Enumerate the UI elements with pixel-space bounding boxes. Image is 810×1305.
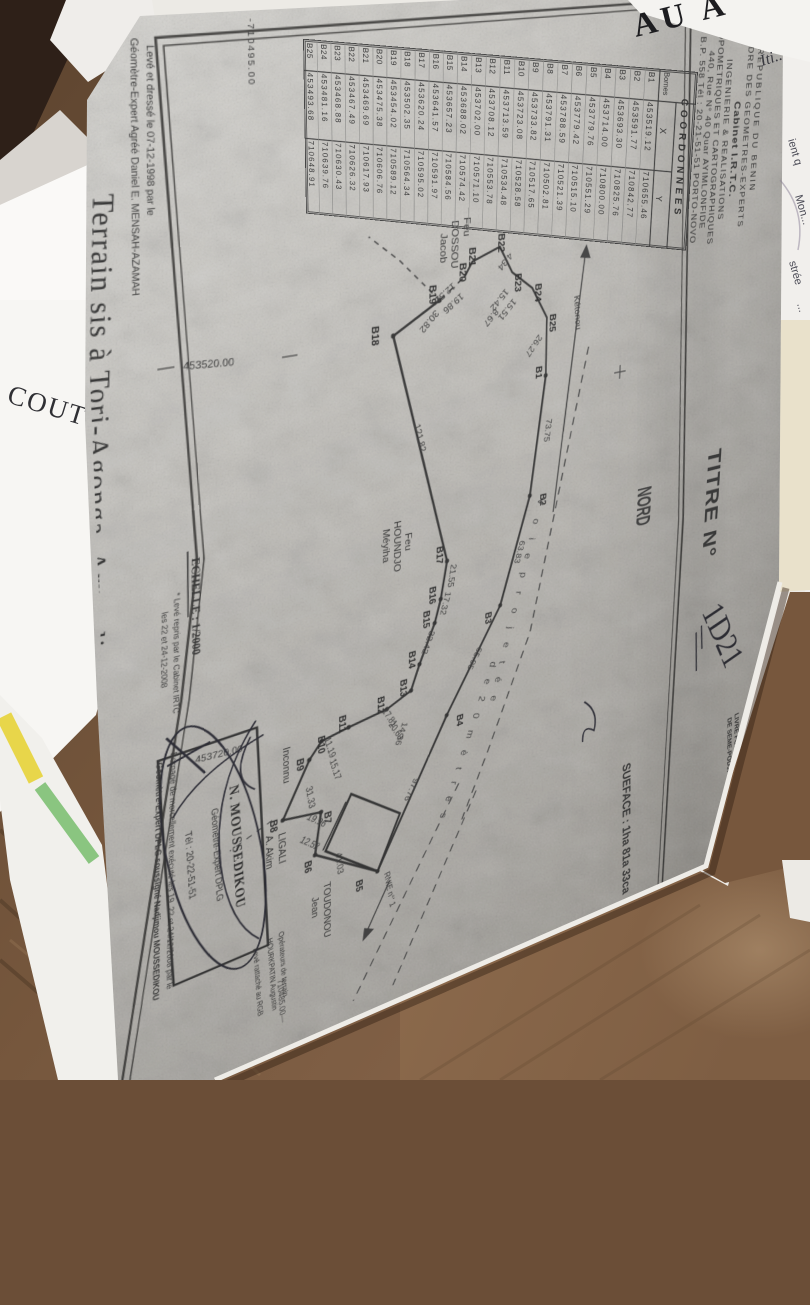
svg-text:453454.02: 453454.02 bbox=[389, 79, 398, 129]
svg-text:B20: B20 bbox=[375, 48, 384, 65]
svg-text:ECHELLE : 1/2000: ECHELLE : 1/2000 bbox=[188, 556, 202, 657]
svg-text:B13: B13 bbox=[474, 57, 483, 74]
svg-text:710825.76: 710825.76 bbox=[611, 168, 622, 217]
svg-text:B5: B5 bbox=[353, 878, 363, 894]
svg-text:B12: B12 bbox=[488, 58, 497, 75]
svg-text:710534.48: 710534.48 bbox=[499, 158, 509, 207]
svg-text:B21: B21 bbox=[361, 47, 370, 64]
svg-text:B5: B5 bbox=[588, 67, 597, 79]
svg-text:B24: B24 bbox=[319, 44, 328, 61]
svg-text:B15: B15 bbox=[421, 610, 431, 631]
svg-text:710630.43: 710630.43 bbox=[334, 143, 343, 191]
svg-text:453688.02: 453688.02 bbox=[458, 86, 467, 136]
svg-text:B25: B25 bbox=[305, 43, 314, 60]
svg-text:Tél : 20-22-51-51: Tél : 20-22-51-51 bbox=[183, 830, 198, 901]
svg-text:Géomètre-Expert DPLG soussigné: Géomètre-Expert DPLG soussigné Nadjimou … bbox=[151, 761, 165, 1002]
svg-text:B4: B4 bbox=[603, 68, 612, 80]
svg-text:les 22 et 24-12-2008: les 22 et 24-12-2008 bbox=[159, 611, 170, 689]
svg-text:B17: B17 bbox=[417, 52, 426, 69]
svg-text:Bornage de morcellement exécut: Bornage de morcellement exécuté les 19, … bbox=[164, 751, 178, 991]
svg-text:Méyiha: Méyiha bbox=[380, 528, 391, 564]
svg-text:B6: B6 bbox=[302, 859, 313, 875]
svg-text:1D21: 1D21 bbox=[696, 593, 749, 677]
svg-text:B25: B25 bbox=[547, 313, 557, 333]
svg-text:NORD: NORD bbox=[632, 484, 657, 529]
svg-text:710553.78: 710553.78 bbox=[485, 157, 495, 206]
svg-text:710502.81: 710502.81 bbox=[540, 162, 550, 211]
svg-text:710589.12: 710589.12 bbox=[389, 148, 397, 196]
svg-text:B8: B8 bbox=[267, 818, 278, 834]
svg-text:Levé rattaché au RGB: Levé rattaché au RGB bbox=[251, 946, 265, 1018]
svg-text:710591.97: 710591.97 bbox=[430, 152, 439, 201]
svg-text:B6: B6 bbox=[574, 65, 583, 77]
svg-text:453591.77: 453591.77 bbox=[628, 101, 640, 152]
svg-text:TOUDONOU: TOUDONOU bbox=[321, 881, 331, 940]
svg-text:Bornes: Bornes bbox=[661, 72, 671, 96]
svg-text:B23: B23 bbox=[512, 273, 522, 293]
svg-text:B15: B15 bbox=[445, 54, 454, 71]
svg-text:65.95: 65.95 bbox=[465, 646, 484, 671]
svg-text:710595.02: 710595.02 bbox=[416, 150, 425, 198]
svg-text:* Levé repris par le Cabinet I: * Levé repris par le Cabinet IRTC bbox=[171, 592, 182, 716]
svg-text:710639.76: 710639.76 bbox=[320, 141, 329, 189]
svg-text:Géomètre-Expert Agréé Daniel E: Géomètre-Expert Agréé Daniel E. MENSAH-A… bbox=[128, 38, 142, 296]
svg-text:710655.46: 710655.46 bbox=[639, 171, 650, 220]
svg-text:B1: B1 bbox=[533, 365, 543, 380]
svg-text:453641.57: 453641.57 bbox=[430, 83, 439, 133]
svg-text:710574.42: 710574.42 bbox=[457, 154, 466, 203]
svg-text:B10: B10 bbox=[516, 60, 525, 77]
svg-text:LIGALI: LIGALI bbox=[276, 831, 287, 866]
svg-text:V o i e p r o j e t é e: V o i e p r o j e t é e bbox=[486, 498, 545, 707]
svg-text:453733.82: 453733.82 bbox=[529, 92, 539, 142]
svg-text:710528.58: 710528.58 bbox=[513, 159, 523, 208]
svg-text:Géomètre-Expert DPLG: Géomètre-Expert DPLG bbox=[209, 807, 225, 904]
svg-text:453519.12: 453519.12 bbox=[643, 102, 655, 153]
svg-text:B2: B2 bbox=[632, 70, 642, 82]
svg-text:453468.88: 453468.88 bbox=[333, 75, 342, 125]
svg-text:453657.23: 453657.23 bbox=[444, 84, 453, 134]
svg-text:453713.59: 453713.59 bbox=[500, 89, 510, 139]
svg-text:Levé et dressé le 07-12-1998 p: Levé et dressé le 07-12-1998 par le bbox=[144, 45, 157, 216]
svg-text:B22: B22 bbox=[495, 233, 505, 254]
svg-text:8.67: 8.67 bbox=[481, 306, 500, 328]
svg-text:26.27: 26.27 bbox=[523, 332, 544, 358]
svg-text:B18: B18 bbox=[369, 325, 380, 347]
svg-text:710606.76: 710606.76 bbox=[375, 146, 383, 194]
svg-text:453467.49: 453467.49 bbox=[347, 76, 356, 126]
svg-text:B19: B19 bbox=[389, 50, 398, 67]
svg-text:710800.00: 710800.00 bbox=[597, 167, 608, 216]
svg-text:32.42: 32.42 bbox=[419, 630, 436, 654]
svg-text:453723.08: 453723.08 bbox=[515, 91, 525, 141]
svg-text:73.75: 73.75 bbox=[541, 418, 553, 442]
svg-text:710626.32: 710626.32 bbox=[348, 144, 357, 192]
svg-text:B3: B3 bbox=[617, 69, 626, 81]
svg-text:710842.77: 710842.77 bbox=[625, 170, 636, 219]
svg-text:B22: B22 bbox=[347, 46, 356, 63]
svg-text:-710495.00: -710495.00 bbox=[245, 18, 256, 86]
svg-text:30.82: 30.82 bbox=[417, 308, 440, 335]
svg-text:710551.29: 710551.29 bbox=[582, 166, 593, 215]
svg-text:453620.24: 453620.24 bbox=[417, 82, 426, 132]
svg-text:B1: B1 bbox=[647, 71, 657, 83]
svg-text:B9: B9 bbox=[531, 62, 540, 74]
svg-text:B16: B16 bbox=[431, 53, 440, 70]
svg-text:Inconnu: Inconnu bbox=[280, 746, 291, 786]
svg-text:B18: B18 bbox=[403, 51, 412, 68]
svg-text:d e 2 0 m è t r e s: d e 2 0 m è t r e s bbox=[436, 661, 498, 822]
svg-text:B21: B21 bbox=[466, 247, 477, 268]
svg-text:B11: B11 bbox=[502, 59, 511, 75]
svg-text:Y: Y bbox=[654, 195, 664, 202]
svg-text:HOURKPATIN Augustin: HOURKPATIN Augustin bbox=[265, 936, 279, 1012]
svg-text:453779.76: 453779.76 bbox=[585, 97, 596, 147]
svg-text:RNIE n°' 1: RNIE n°' 1 bbox=[382, 870, 397, 909]
svg-text:453788.59: 453788.59 bbox=[557, 94, 568, 144]
svg-text:453702.00: 453702.00 bbox=[472, 87, 482, 137]
svg-text:11.19: 11.19 bbox=[322, 735, 338, 761]
svg-text:453779.42: 453779.42 bbox=[571, 95, 582, 145]
svg-text:710617.93: 710617.93 bbox=[361, 145, 370, 193]
svg-text:B14: B14 bbox=[406, 650, 416, 671]
svg-text:453475.38: 453475.38 bbox=[375, 78, 384, 128]
svg-text:453520.00: 453520.00 bbox=[183, 356, 235, 373]
svg-text:453502.35: 453502.35 bbox=[403, 81, 412, 131]
svg-text:Feu: Feu bbox=[402, 532, 412, 552]
svg-text:HOUNDJO: HOUNDJO bbox=[391, 520, 402, 574]
svg-text:710571.10: 710571.10 bbox=[471, 155, 480, 204]
svg-text:Jean: Jean bbox=[309, 895, 320, 920]
svg-text:710564.34: 710564.34 bbox=[402, 149, 411, 197]
svg-text:453791.31: 453791.31 bbox=[543, 93, 553, 143]
svg-text:31.33: 31.33 bbox=[303, 784, 317, 810]
svg-text:Jacob: Jacob bbox=[437, 233, 448, 264]
svg-text:710517.65: 710517.65 bbox=[527, 161, 537, 210]
svg-text:B13: B13 bbox=[398, 678, 408, 699]
svg-text:B23: B23 bbox=[333, 45, 342, 62]
svg-text:710584.56: 710584.56 bbox=[444, 153, 453, 202]
svg-text:453714.00: 453714.00 bbox=[600, 98, 611, 148]
svg-text:TITRE N°: TITRE N° bbox=[698, 447, 726, 562]
svg-text:710515.10: 710515.10 bbox=[568, 164, 579, 213]
svg-text:N. MOUSSEDIKOU: N. MOUSSEDIKOU bbox=[226, 782, 248, 911]
svg-text:97.76: 97.76 bbox=[402, 778, 421, 802]
svg-text:710521.39: 710521.39 bbox=[554, 163, 564, 212]
svg-text:Kétonou: Kétonou bbox=[572, 294, 583, 331]
svg-text:453693.30: 453693.30 bbox=[614, 99, 625, 149]
svg-text:B16: B16 bbox=[427, 585, 437, 606]
svg-text:B11: B11 bbox=[336, 714, 347, 735]
svg-text:453493.68: 453493.68 bbox=[306, 72, 315, 122]
svg-text:453469.69: 453469.69 bbox=[361, 77, 370, 127]
svg-text:453481.16: 453481.16 bbox=[319, 73, 328, 123]
svg-text:453708.12: 453708.12 bbox=[486, 88, 496, 138]
svg-text:15.17: 15.17 bbox=[327, 757, 343, 783]
svg-text:B7: B7 bbox=[560, 64, 569, 76]
svg-text:B8: B8 bbox=[545, 63, 554, 75]
svg-text:B4: B4 bbox=[454, 713, 464, 728]
svg-text:121.82: 121.82 bbox=[411, 422, 427, 454]
svg-text:710648.91: 710648.91 bbox=[307, 140, 316, 188]
svg-text:B24: B24 bbox=[532, 283, 542, 303]
svg-text:SUEFACE : 1ha 81a 33ca: SUEFACE : 1ha 81a 33ca bbox=[620, 761, 632, 897]
svg-text:X: X bbox=[658, 128, 668, 135]
svg-text:B17: B17 bbox=[434, 545, 444, 566]
svg-text:B14: B14 bbox=[459, 56, 468, 73]
svg-text:B9: B9 bbox=[294, 757, 305, 773]
